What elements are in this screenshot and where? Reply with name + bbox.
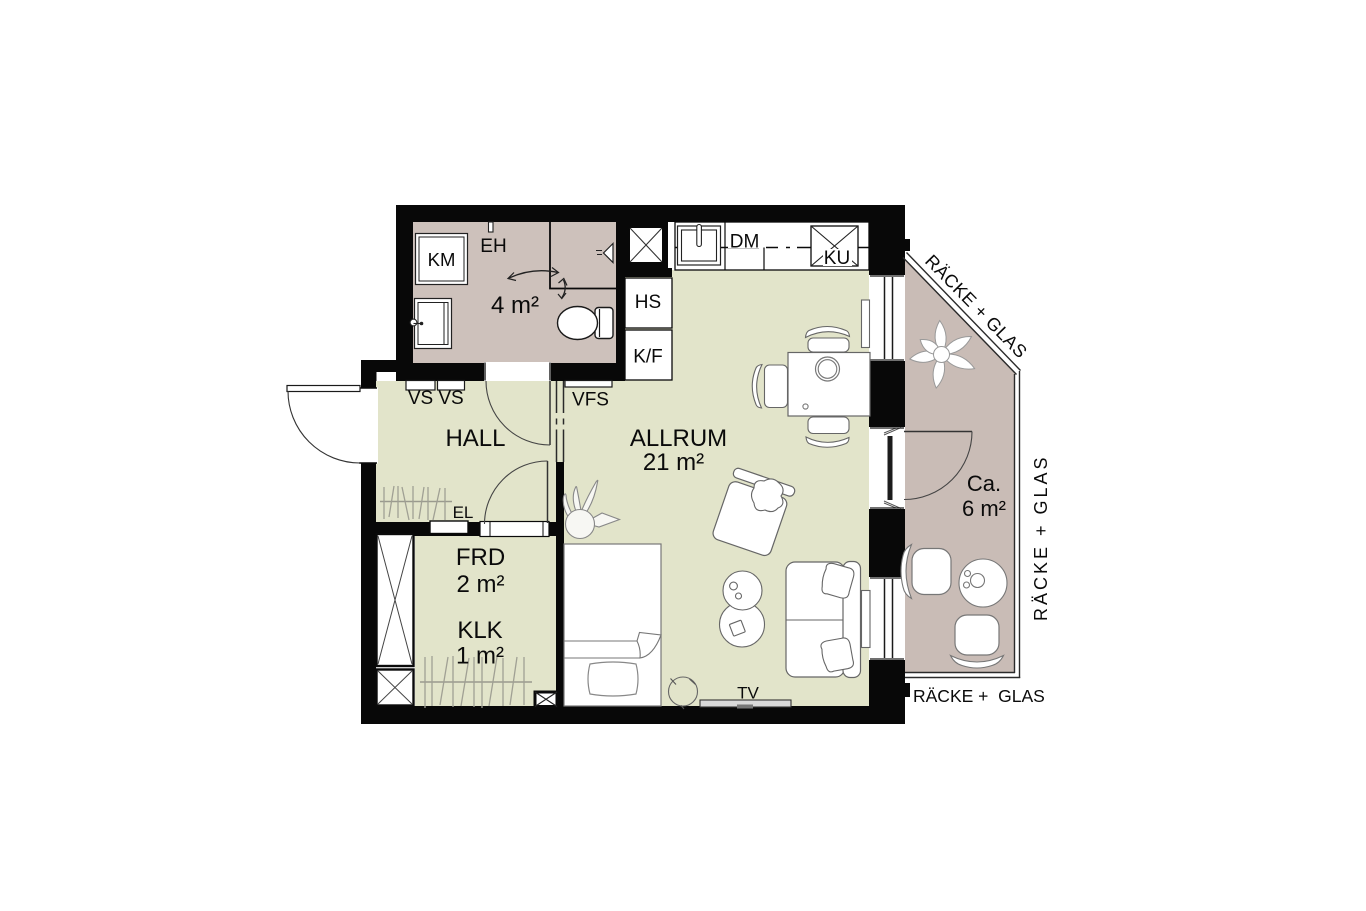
svg-text:KM: KM: [428, 249, 456, 270]
svg-text:ALLRUM: ALLRUM: [630, 425, 727, 452]
svg-text:21 m²: 21 m²: [643, 449, 704, 476]
svg-text:6 m²: 6 m²: [962, 496, 1006, 521]
svg-text:K/F: K/F: [633, 347, 663, 368]
svg-text:4 m²: 4 m²: [491, 292, 539, 319]
svg-text:1 m²: 1 m²: [456, 643, 504, 670]
svg-text:2 m²: 2 m²: [457, 571, 505, 598]
svg-text:VFS: VFS: [572, 390, 609, 411]
svg-text:FRD: FRD: [456, 544, 505, 571]
svg-text:EL: EL: [453, 503, 474, 522]
svg-text:KLK: KLK: [457, 617, 502, 644]
svg-text:RÄCKE + GLAS: RÄCKE + GLAS: [1031, 454, 1051, 621]
svg-text:VS: VS: [408, 388, 433, 409]
svg-text:HALL: HALL: [445, 425, 505, 452]
svg-text:VS: VS: [438, 388, 463, 409]
svg-text:TV: TV: [737, 684, 759, 703]
svg-text:KU: KU: [824, 248, 850, 269]
svg-text:EH: EH: [480, 236, 506, 257]
svg-text:RÄCKE + GLAS: RÄCKE + GLAS: [913, 686, 1045, 706]
svg-text:DM: DM: [730, 232, 760, 253]
svg-text:HS: HS: [635, 292, 661, 313]
svg-text:Ca.: Ca.: [967, 471, 1001, 496]
